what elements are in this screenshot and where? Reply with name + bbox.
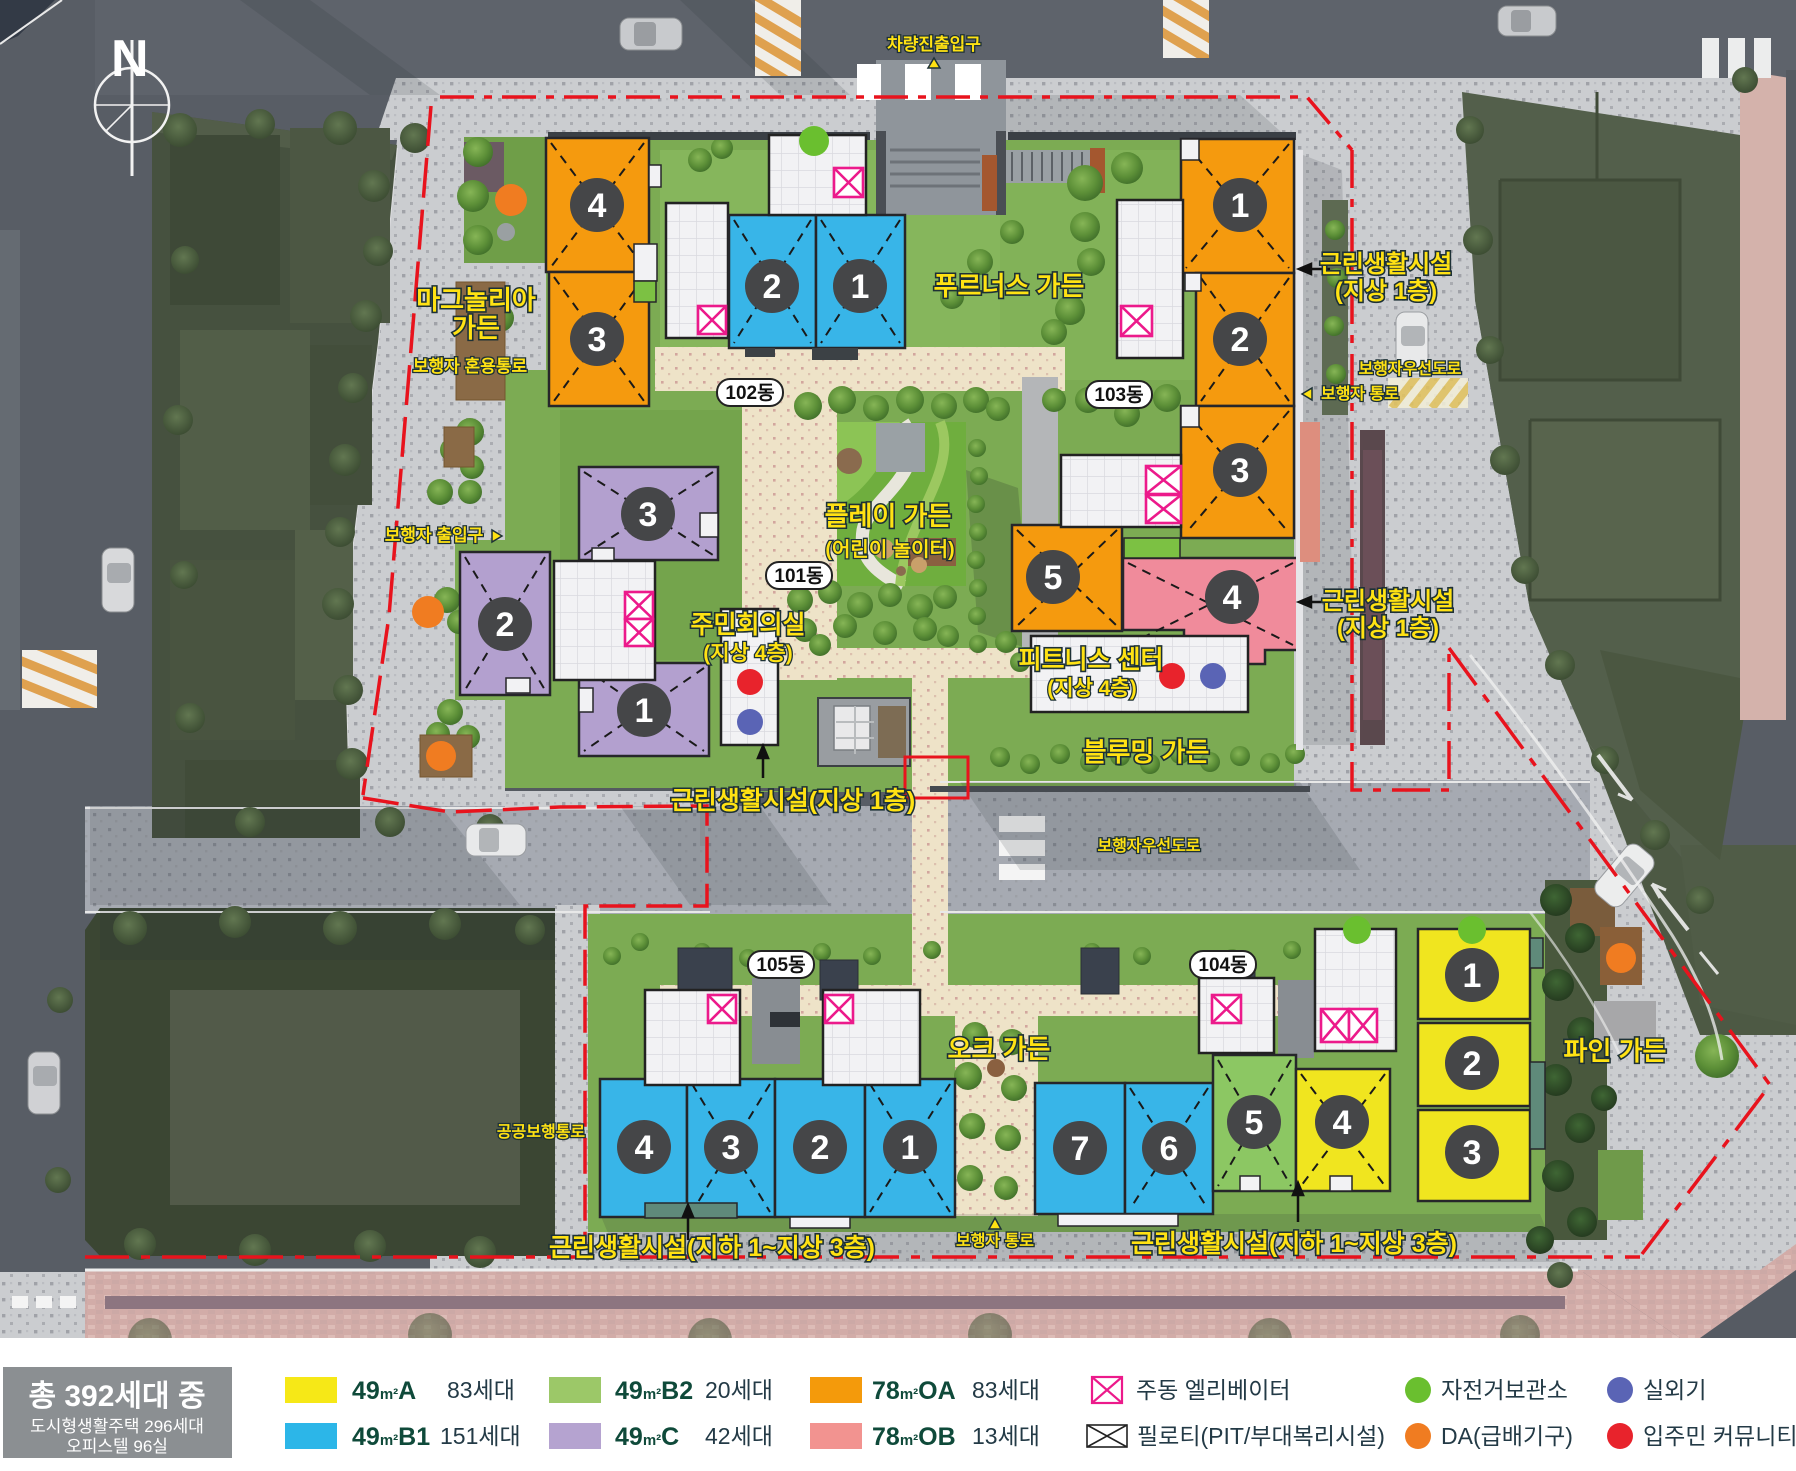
svg-text:104동: 104동 [1198,955,1247,976]
svg-text:105동: 105동 [756,955,805,976]
svg-text:근린생활시설(지상 1층): 근린생활시설(지상 1층) [671,787,916,815]
svg-text:필로티(PIT/부대복리시설): 필로티(PIT/부대복리시설) [1137,1423,1385,1449]
svg-text:블루밍 가든: 블루밍 가든 [1083,737,1210,767]
svg-text:(지상 1층): (지상 1층) [1335,278,1437,305]
svg-text:(지상 4층): (지상 4층) [703,642,792,665]
svg-text:N: N [111,30,149,88]
svg-text:DA(급배기구): DA(급배기구) [1441,1423,1573,1449]
svg-text:4: 4 [588,187,607,225]
svg-text:13세대: 13세대 [972,1423,1040,1449]
svg-text:(지상 1층): (지상 1층) [1337,615,1439,642]
svg-text:4: 4 [1333,1104,1352,1142]
svg-text:83세대: 83세대 [447,1377,515,1403]
svg-text:피트니스 센터: 피트니스 센터 [1019,646,1164,674]
svg-text:보행자우선도로: 보행자우선도로 [1097,837,1200,855]
svg-text:3: 3 [722,1129,741,1167]
svg-text:5: 5 [1245,1104,1264,1142]
svg-text:보행자 통로: 보행자 통로 [1321,385,1399,403]
svg-text:오피스텔 96실: 오피스텔 96실 [66,1437,168,1456]
svg-text:근린생활시설: 근린생활시설 [1320,251,1452,278]
svg-text:주동 엘리베이터: 주동 엘리베이터 [1136,1377,1291,1403]
svg-text:103동: 103동 [1094,385,1143,406]
svg-text:2: 2 [763,268,782,306]
svg-text:보행자우선도로: 보행자우선도로 [1358,360,1461,378]
svg-text:3: 3 [588,321,607,359]
svg-text:3: 3 [639,496,658,534]
svg-text:공공보행통로: 공공보행통로 [497,1123,586,1141]
svg-text:(지상 4층): (지상 4층) [1047,677,1136,700]
svg-text:83세대: 83세대 [972,1377,1040,1403]
svg-text:근린생활시설(지하 1~지상 3층): 근린생활시설(지하 1~지상 3층) [1131,1230,1457,1258]
svg-text:2: 2 [496,606,515,644]
svg-text:3: 3 [1231,452,1250,490]
svg-text:오크 가든: 오크 가든 [948,1034,1051,1064]
svg-text:푸르너스 가든: 푸르너스 가든 [934,271,1085,301]
svg-text:도시형생활주택 296세대: 도시형생활주택 296세대 [30,1417,204,1436]
svg-text:근린생활시설: 근린생활시설 [1322,588,1454,615]
svg-text:플레이 가든: 플레이 가든 [825,501,952,531]
svg-text:마그놀리아: 마그놀리아 [416,285,536,315]
svg-text:1: 1 [1463,957,1482,995]
svg-text:1: 1 [635,692,654,730]
svg-text:6: 6 [1160,1130,1179,1168]
svg-text:2: 2 [1231,321,1250,359]
svg-text:4: 4 [635,1129,654,1167]
svg-text:차량진출입구: 차량진출입구 [887,35,981,54]
svg-text:101동: 101동 [774,566,823,587]
svg-text:1: 1 [851,268,870,306]
svg-text:151세대: 151세대 [440,1423,521,1449]
svg-text:보행자 통로: 보행자 통로 [956,1232,1034,1250]
svg-text:파인 가든: 파인 가든 [1564,1036,1667,1066]
svg-text:20세대: 20세대 [705,1377,773,1403]
svg-text:자전거보관소: 자전거보관소 [1441,1377,1568,1403]
svg-text:2: 2 [811,1129,830,1167]
svg-text:총 392세대 중: 총 392세대 중 [28,1380,205,1413]
svg-text:42세대: 42세대 [705,1423,773,1449]
svg-text:2: 2 [1463,1045,1482,1083]
svg-text:7: 7 [1071,1130,1090,1168]
svg-text:102동: 102동 [725,383,774,404]
svg-text:1: 1 [901,1129,920,1167]
svg-text:근린생활시설(지하 1~지상 3층): 근린생활시설(지하 1~지상 3층) [549,1234,875,1262]
svg-text:5: 5 [1044,559,1063,597]
svg-text:4: 4 [1223,579,1242,617]
svg-text:(어린이 놀이터): (어린이 놀이터) [825,538,954,561]
svg-text:3: 3 [1463,1134,1482,1172]
svg-text:주민회의실: 주민회의실 [690,611,805,639]
svg-text:가든: 가든 [452,313,500,343]
svg-text:입주민 커뮤니티: 입주민 커뮤니티 [1643,1423,1796,1449]
svg-text:1: 1 [1231,187,1250,225]
svg-text:보행자 혼용통로: 보행자 혼용통로 [413,356,528,376]
svg-text:실외기: 실외기 [1643,1377,1706,1403]
svg-text:보행자 출입구: 보행자 출입구 [385,526,484,545]
